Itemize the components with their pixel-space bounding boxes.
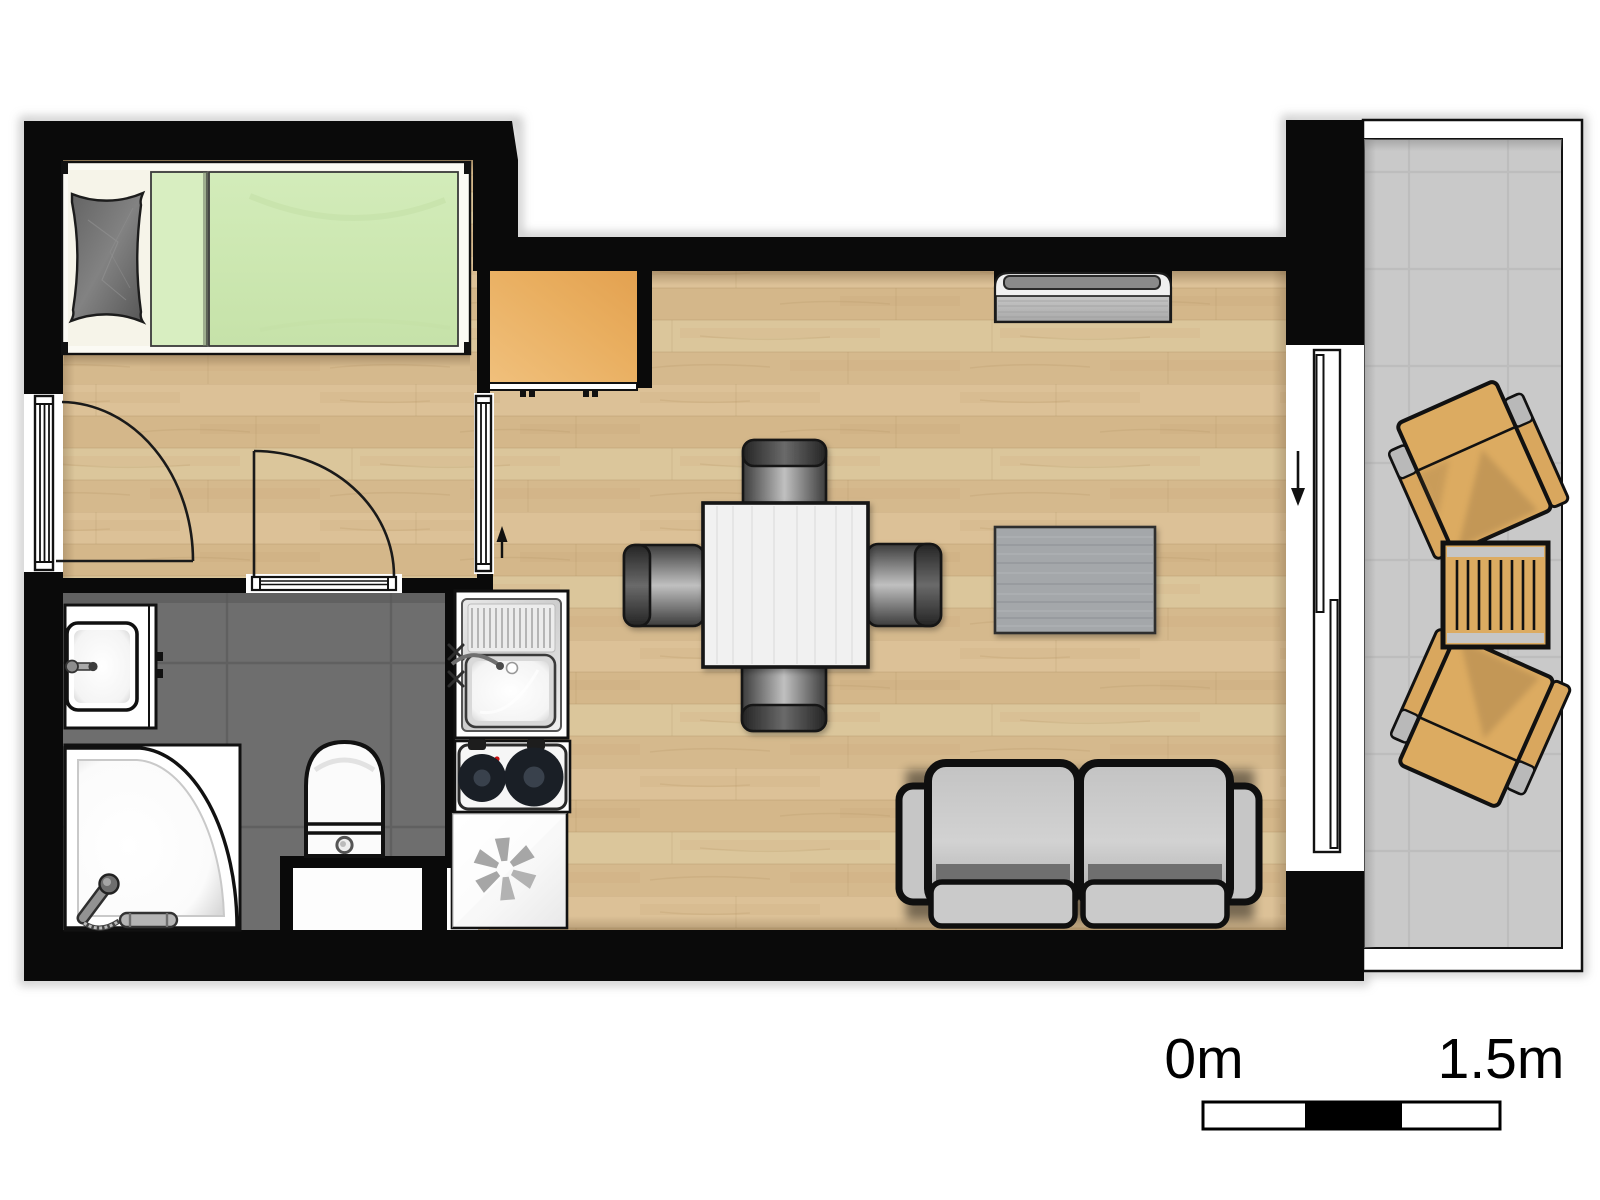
svg-text:1.5m: 1.5m	[1438, 1027, 1565, 1091]
svg-text:0m: 0m	[1164, 1027, 1243, 1091]
